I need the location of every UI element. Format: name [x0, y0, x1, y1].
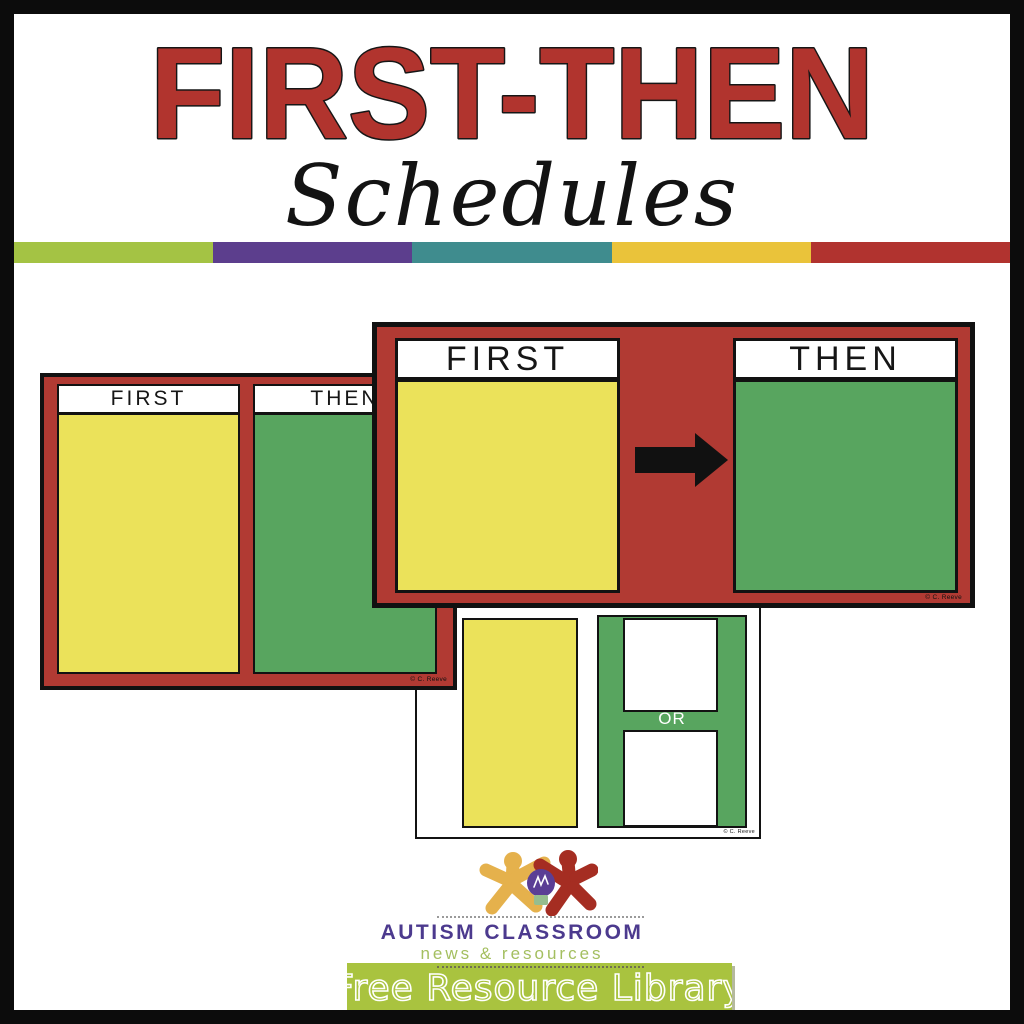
logo-graphic: [478, 850, 598, 916]
then-header: THEN: [733, 338, 958, 380]
page-subtitle: Schedules: [0, 146, 1024, 256]
choice-slot-2: [623, 730, 718, 827]
first-panel: [57, 413, 240, 674]
or-label: OR: [599, 708, 745, 730]
first-header: FIRST: [57, 384, 240, 414]
logo-brand-name: AUTISM CLASSROOM: [0, 921, 1024, 945]
dotted-divider: [437, 916, 644, 918]
poster: FIRST-THEN Schedules FIRST THEN OR © C. …: [0, 0, 1024, 1024]
arrow-right-icon: [635, 433, 728, 487]
first-panel: [462, 618, 578, 828]
copyright-note: © C. Reeve: [410, 676, 447, 683]
banner-label: Free Resource Library: [347, 968, 732, 1009]
page-title: FIRST-THEN: [150, 20, 874, 148]
choice-slot-1: [623, 618, 718, 712]
then-panel: OR: [597, 615, 747, 828]
free-resource-library-banner[interactable]: Free Resource Library: [347, 963, 732, 1013]
schedule-card-choice: FIRST THEN OR © C. Reeve: [415, 598, 761, 839]
first-panel: [395, 379, 620, 593]
copyright-note: © C. Reeve: [723, 829, 755, 835]
then-panel: [733, 379, 958, 593]
first-header: FIRST: [395, 338, 620, 380]
title-graphic: FIRST-THEN: [0, 16, 1024, 148]
schedule-card-front: FIRST THEN © C. Reeve: [372, 322, 975, 608]
banner-label-graphic: Free Resource Library: [347, 963, 732, 1013]
dotted-divider: [437, 966, 644, 968]
copyright-note: © C. Reeve: [925, 594, 962, 601]
logo-tagline: news & resources: [0, 944, 1024, 964]
